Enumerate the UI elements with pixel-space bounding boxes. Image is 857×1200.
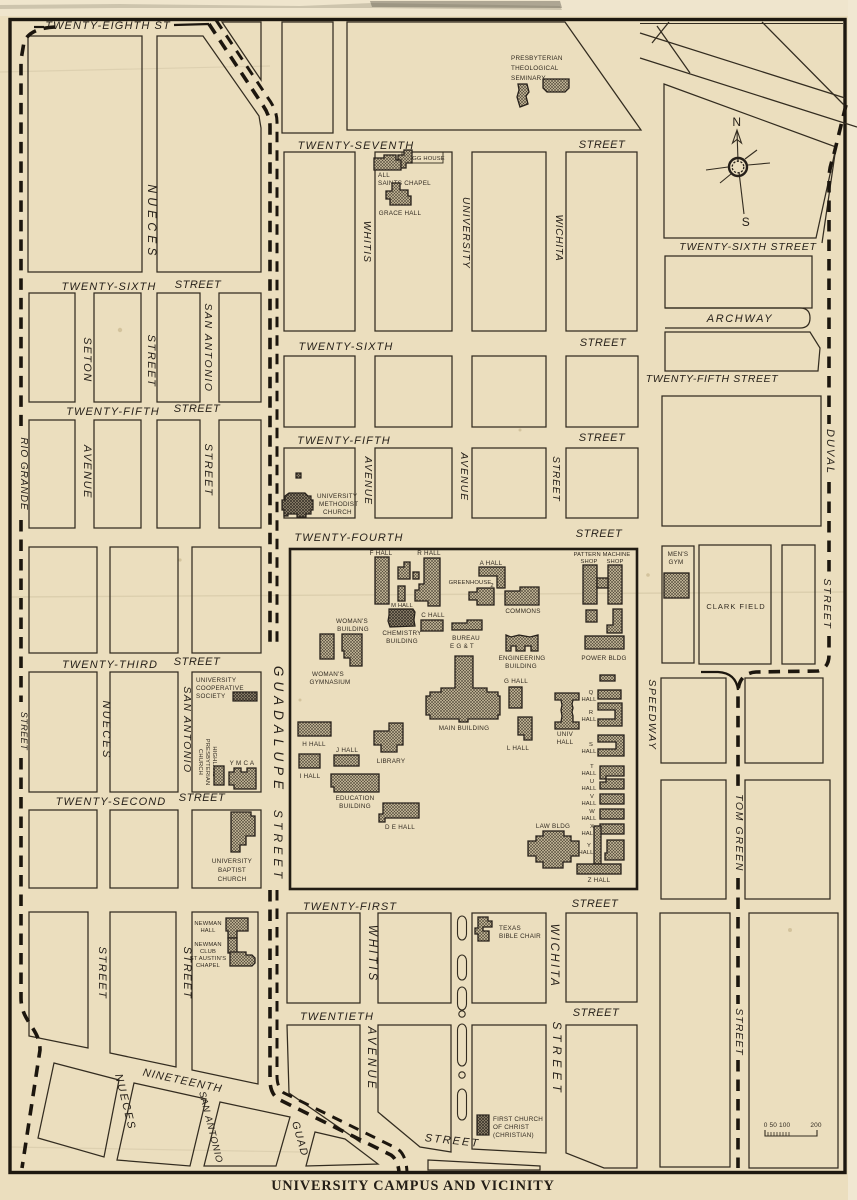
svg-text:SAN ANTONIO: SAN ANTONIO <box>181 686 193 773</box>
svg-text:STREET: STREET <box>550 1022 564 1097</box>
svg-text:R: R <box>589 710 593 716</box>
svg-text:UNIVERSITY: UNIVERSITY <box>212 858 253 865</box>
svg-text:TWENTY-FIRST: TWENTY-FIRST <box>303 901 397 913</box>
svg-text:STREET: STREET <box>579 432 626 444</box>
svg-text:TWENTY-SEVENTH: TWENTY-SEVENTH <box>298 140 415 152</box>
svg-text:(CHRISTIAN): (CHRISTIAN) <box>493 1132 534 1139</box>
svg-text:STREET: STREET <box>733 1008 745 1056</box>
svg-text:THEOLOGICAL: THEOLOGICAL <box>511 65 559 72</box>
svg-text:STREET: STREET <box>580 337 627 349</box>
svg-text:J HALL: J HALL <box>336 747 358 754</box>
svg-text:CLARK FIELD: CLARK FIELD <box>706 602 765 611</box>
svg-text:HALL: HALL <box>581 771 597 777</box>
svg-text:CHURCH: CHURCH <box>197 749 203 775</box>
svg-text:MEN'S: MEN'S <box>668 551 689 558</box>
svg-text:GUADALUPE: GUADALUPE <box>271 666 286 794</box>
svg-text:METHODIST: METHODIST <box>319 501 358 508</box>
svg-text:STREET: STREET <box>181 947 193 1000</box>
svg-text:STREET: STREET <box>179 792 226 804</box>
svg-text:HALL: HALL <box>557 739 574 746</box>
svg-text:BUILDING: BUILDING <box>337 626 369 633</box>
svg-text:GRACE HALL: GRACE HALL <box>379 210 422 217</box>
svg-text:UNIV: UNIV <box>557 731 574 738</box>
svg-text:WICHITA: WICHITA <box>553 214 564 261</box>
svg-text:U: U <box>590 779 594 785</box>
svg-text:HALL: HALL <box>581 749 597 755</box>
svg-text:NUECES: NUECES <box>100 700 112 759</box>
svg-text:HALL: HALL <box>581 786 597 792</box>
svg-text:GREENHOUSE: GREENHOUSE <box>449 580 492 586</box>
svg-text:STREET: STREET <box>175 279 222 291</box>
svg-text:GYMNASIUM: GYMNASIUM <box>309 679 350 686</box>
svg-text:STREET: STREET <box>573 1007 620 1019</box>
svg-text:R HALL: R HALL <box>417 550 441 557</box>
svg-text:SHOP: SHOP <box>580 559 597 565</box>
svg-text:POWER BLDG: POWER BLDG <box>581 655 626 662</box>
svg-text:STREET: STREET <box>271 810 285 883</box>
svg-text:SAN ANTONIO: SAN ANTONIO <box>202 303 214 392</box>
svg-text:CHURCH: CHURCH <box>218 876 247 883</box>
svg-text:SEMINARY: SEMINARY <box>511 75 546 82</box>
svg-text:CHAPEL: CHAPEL <box>196 963 221 969</box>
svg-text:Q: Q <box>589 690 594 696</box>
svg-text:BUILDING: BUILDING <box>386 638 418 645</box>
svg-text:UNIVERSITY: UNIVERSITY <box>317 493 358 500</box>
svg-text:UNIVERSITY: UNIVERSITY <box>196 677 237 684</box>
svg-text:AVENUE: AVENUE <box>365 1026 377 1092</box>
svg-text:UNIVERSITY: UNIVERSITY <box>460 197 471 269</box>
svg-text:STREET: STREET <box>550 456 561 501</box>
svg-text:BUREAU: BUREAU <box>452 635 480 642</box>
svg-text:HALL: HALL <box>581 816 597 822</box>
svg-text:PRESBYTERIAN: PRESBYTERIAN <box>511 55 563 62</box>
svg-text:AVENUE: AVENUE <box>81 444 93 499</box>
svg-text:HALL: HALL <box>581 697 597 703</box>
svg-text:TWENTY-SIXTH: TWENTY-SIXTH <box>299 341 394 353</box>
svg-text:200: 200 <box>810 1122 822 1129</box>
svg-text:TWENTY-SIXTH STREET: TWENTY-SIXTH STREET <box>679 241 817 253</box>
svg-text:STREET: STREET <box>576 528 623 540</box>
svg-text:AVENUE: AVENUE <box>362 456 373 506</box>
svg-text:HALL: HALL <box>578 850 594 856</box>
svg-text:COOPERATIVE: COOPERATIVE <box>196 685 244 692</box>
svg-text:SOCIETY: SOCIETY <box>196 693 226 700</box>
svg-text:A HALL: A HALL <box>480 560 503 567</box>
svg-text:ARCHWAY: ARCHWAY <box>706 313 773 325</box>
svg-text:NEWMAN: NEWMAN <box>194 942 221 948</box>
svg-text:ST AUSTIN'S: ST AUSTIN'S <box>190 956 226 962</box>
svg-text:TWENTY-EIGHTH ST: TWENTY-EIGHTH ST <box>45 20 171 32</box>
svg-text:NEWMAN: NEWMAN <box>194 921 221 927</box>
svg-text:WHITIS: WHITIS <box>361 221 372 263</box>
svg-text:D E HALL: D E HALL <box>385 824 415 831</box>
svg-text:Y: Y <box>587 843 591 849</box>
svg-text:ENGINEERING: ENGINEERING <box>499 655 546 662</box>
svg-text:SHOP: SHOP <box>606 559 623 565</box>
svg-text:STREET: STREET <box>821 578 833 629</box>
svg-text:WHITIS: WHITIS <box>366 925 378 983</box>
svg-text:STREET: STREET <box>572 898 619 910</box>
svg-text:SETON: SETON <box>81 337 93 383</box>
svg-text:E G & T: E G & T <box>450 643 474 650</box>
svg-text:TOM GREEN: TOM GREEN <box>733 794 745 872</box>
svg-text:G HALL: G HALL <box>504 678 528 685</box>
svg-text:Z HALL: Z HALL <box>588 877 611 884</box>
svg-text:TWENTIETH: TWENTIETH <box>300 1011 374 1023</box>
svg-text:FIRST CHURCH: FIRST CHURCH <box>493 1116 543 1123</box>
svg-text:GYM: GYM <box>668 559 683 566</box>
svg-text:C HALL: C HALL <box>421 612 445 619</box>
svg-text:NUECES: NUECES <box>145 184 159 259</box>
svg-text:STREET: STREET <box>96 947 108 1000</box>
svg-text:F HALL: F HALL <box>370 550 393 557</box>
svg-text:UNIVERSITY CAMPUS AND VICINITY: UNIVERSITY CAMPUS AND VICINITY <box>271 1178 555 1194</box>
svg-text:HALL: HALL <box>200 928 216 934</box>
svg-text:RIO GRANDE: RIO GRANDE <box>18 437 29 510</box>
svg-text:TWENTY-FIFTH STREET: TWENTY-FIFTH STREET <box>646 373 780 385</box>
svg-text:L HALL: L HALL <box>507 745 530 752</box>
svg-text:STREET: STREET <box>174 656 221 668</box>
svg-text:PATTERN MACHINE: PATTERN MACHINE <box>574 552 631 558</box>
svg-text:T: T <box>590 764 594 770</box>
svg-text:H HALL: H HALL <box>302 741 326 748</box>
svg-text:STREET: STREET <box>19 712 29 752</box>
svg-text:TWENTY-FIFTH: TWENTY-FIFTH <box>66 406 160 418</box>
svg-text:HALL: HALL <box>581 801 597 807</box>
svg-text:COMMONS: COMMONS <box>505 608 540 615</box>
svg-text:M HALL: M HALL <box>391 603 413 609</box>
svg-text:BIBLE CHAIR: BIBLE CHAIR <box>499 933 541 940</box>
svg-text:BUILDING: BUILDING <box>339 803 371 810</box>
svg-text:CHEMISTRY: CHEMISTRY <box>382 630 422 637</box>
svg-text:LAW BLDG: LAW BLDG <box>536 823 570 830</box>
svg-text:CHURCH: CHURCH <box>323 509 352 516</box>
svg-text:STREET: STREET <box>174 403 221 415</box>
svg-text:WOMAN'S: WOMAN'S <box>336 618 368 625</box>
svg-text:S: S <box>742 215 751 229</box>
svg-text:I HALL: I HALL <box>300 773 321 780</box>
svg-text:HALL: HALL <box>581 717 597 723</box>
svg-text:WOMAN'S: WOMAN'S <box>312 671 344 678</box>
svg-text:STREET: STREET <box>579 139 626 151</box>
svg-text:N: N <box>732 115 741 129</box>
svg-text:LIBRARY: LIBRARY <box>377 758 406 765</box>
svg-text:TWENTY-SIXTH: TWENTY-SIXTH <box>62 281 157 293</box>
svg-text:TEXAS: TEXAS <box>499 925 521 932</box>
svg-text:PRESBYTERIAN: PRESBYTERIAN <box>204 739 210 786</box>
svg-text:W: W <box>589 809 595 815</box>
svg-text:TWENTY-FOURTH: TWENTY-FOURTH <box>294 532 403 544</box>
svg-text:BUILDING: BUILDING <box>505 663 537 670</box>
svg-text:V: V <box>590 794 594 800</box>
svg-text:Y M C A: Y M C A <box>230 760 255 767</box>
svg-text:BAPTIST: BAPTIST <box>218 867 246 874</box>
svg-text:MAIN BUILDING: MAIN BUILDING <box>439 725 489 732</box>
svg-text:DUVAL: DUVAL <box>824 429 836 475</box>
svg-text:EDUCATION: EDUCATION <box>336 795 375 802</box>
svg-text:STREET: STREET <box>145 335 157 388</box>
svg-text:SPEEDWAY: SPEEDWAY <box>646 679 658 750</box>
svg-text:OF CHRIST: OF CHRIST <box>493 1124 529 1131</box>
svg-text:TWENTY-FIFTH: TWENTY-FIFTH <box>297 435 391 447</box>
svg-text:S: S <box>589 742 593 748</box>
svg-text:TWENTY-THIRD: TWENTY-THIRD <box>62 659 158 671</box>
svg-text:AVENUE: AVENUE <box>458 452 469 502</box>
svg-text:STREET: STREET <box>202 444 214 497</box>
svg-text:TWENTY-SECOND: TWENTY-SECOND <box>56 796 167 808</box>
svg-text:CLUB: CLUB <box>200 949 216 955</box>
svg-text:0 50 100: 0 50 100 <box>764 1122 791 1129</box>
svg-text:WICHITA: WICHITA <box>548 924 560 989</box>
svg-text:SAINTS CHAPEL: SAINTS CHAPEL <box>378 180 431 187</box>
svg-text:ALL: ALL <box>378 172 390 179</box>
